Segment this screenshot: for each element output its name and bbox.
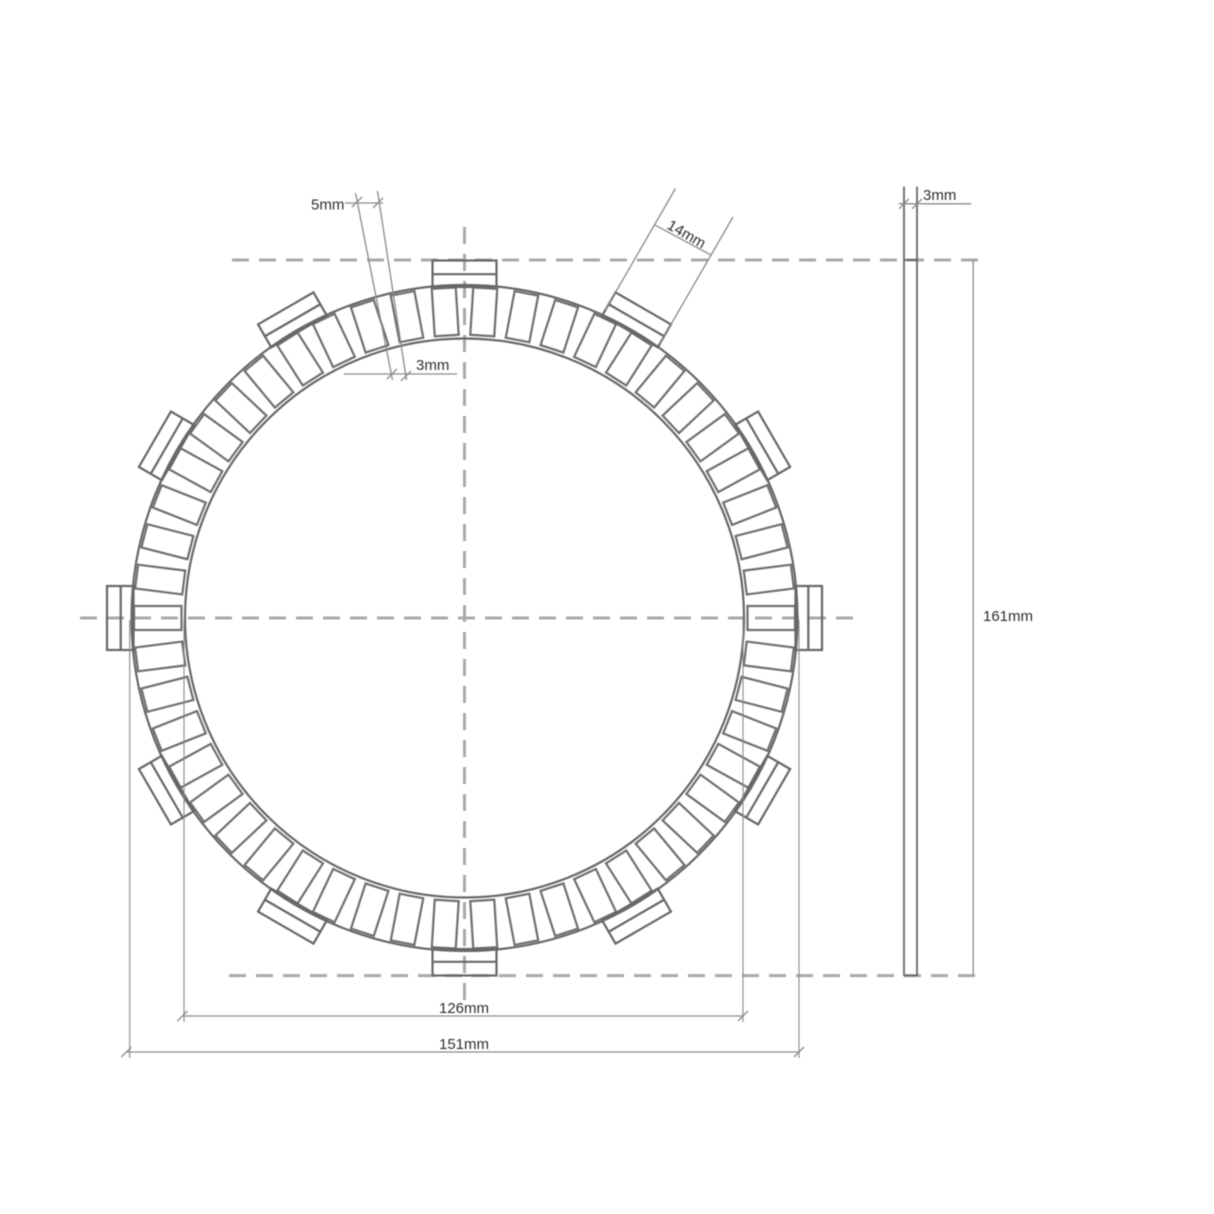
svg-text:5mm: 5mm <box>311 197 344 214</box>
svg-text:151mm: 151mm <box>439 1036 489 1053</box>
svg-text:3mm: 3mm <box>416 357 449 374</box>
svg-text:161mm: 161mm <box>983 608 1033 625</box>
svg-text:3mm: 3mm <box>923 187 956 204</box>
svg-text:126mm: 126mm <box>439 1000 489 1017</box>
